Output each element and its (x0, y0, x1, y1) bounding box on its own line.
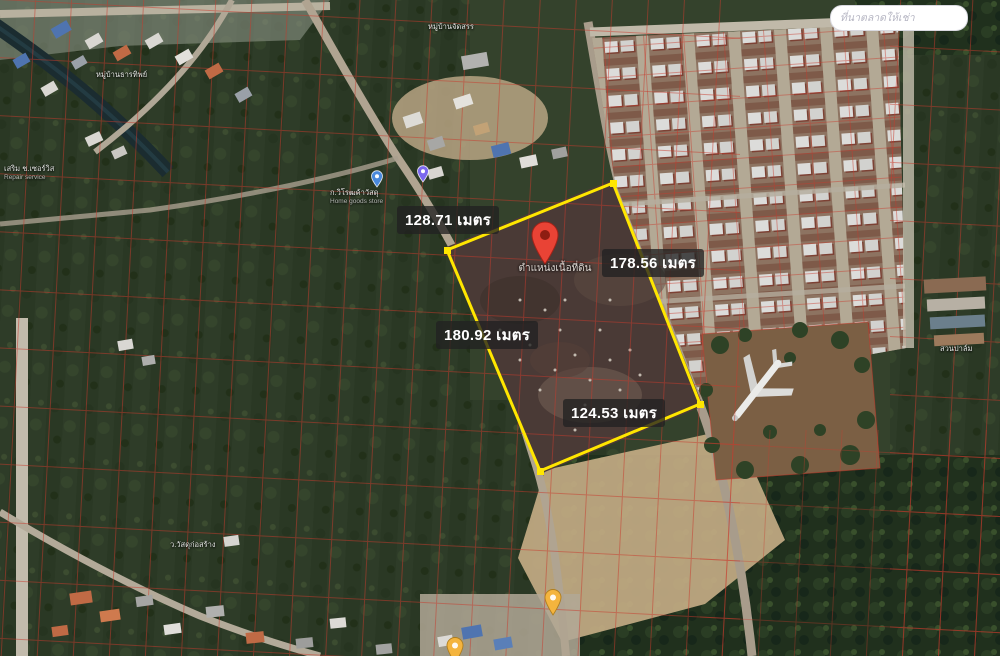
measurement-left: 180.92 เมตร (436, 321, 538, 349)
poi-category: Home goods store (330, 197, 383, 206)
plot-caption: ตำแหน่งเนื้อที่ดิน (495, 261, 615, 276)
measurement-top: 128.71 เมตร (397, 206, 499, 234)
yellow-poi-pin[interactable] (444, 636, 466, 656)
poi-label: เสริม ช.เซอร์วิส Repair service (4, 164, 54, 182)
poi-category: Repair service (4, 173, 54, 182)
satellite-map-view[interactable]: 128.71 เมตร 178.56 เมตร 180.92 เมตร 124.… (0, 0, 1000, 656)
poi-label: หมู่บ้านจัดสรร (428, 22, 474, 31)
poi-label: ว.วัสดุก่อสร้าง (170, 540, 215, 549)
poi-label: หมู่บ้านธารทิพย์ (96, 70, 147, 79)
purple-poi-pin[interactable] (416, 165, 430, 188)
poi-name: เสริม ช.เซอร์วิส (4, 164, 54, 173)
poi-label: ก.วิโรฒค้าวัสดุ Home goods store (330, 188, 383, 206)
yellow-poi-pin[interactable] (542, 588, 564, 621)
measurement-right: 178.56 เมตร (602, 249, 704, 277)
poi-label: สวนปาล์ม (940, 344, 972, 353)
poi-name: ก.วิโรฒค้าวัสดุ (330, 188, 379, 197)
watermark-search-box: ที่นาตลาดให้เช่า (830, 5, 968, 31)
measurement-bottom: 124.53 เมตร (563, 399, 665, 427)
